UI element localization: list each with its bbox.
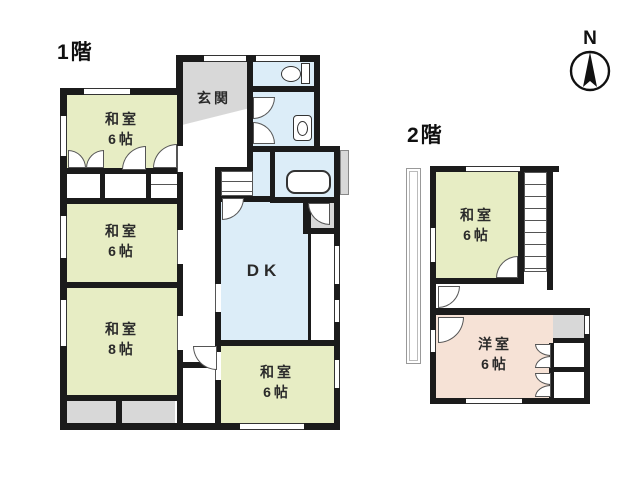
floor-plan: 1階 2階 N [0, 0, 640, 480]
washbasin-bowl-icon [297, 121, 308, 136]
wall [100, 174, 105, 198]
window [84, 88, 130, 95]
door-opening [177, 146, 183, 172]
room-size: 6帖 [450, 354, 540, 374]
room-name: 和室 [77, 221, 167, 241]
room-label: 和室 8帖 [77, 319, 167, 359]
wall [247, 146, 340, 152]
closet-gray-2f [553, 315, 584, 338]
room-name: 和室 [77, 109, 167, 129]
closet-slide-line [151, 184, 177, 185]
window [430, 330, 436, 352]
window [60, 116, 67, 156]
door-opening [177, 230, 183, 264]
entrance-label: 玄関 [176, 88, 252, 108]
room-name: 和室 [77, 319, 167, 339]
room-name: 和室 [232, 362, 322, 382]
room-label: 和室 6帖 [77, 221, 167, 261]
wall [247, 86, 320, 92]
wall [270, 152, 275, 197]
room-label: 和室 6帖 [232, 362, 322, 402]
wall [116, 401, 122, 423]
entrance-door [204, 55, 246, 62]
wall [553, 338, 584, 343]
room-label: 和室 6帖 [77, 109, 167, 149]
floor2-label: 2階 [407, 119, 444, 149]
wall [60, 198, 183, 204]
closet-row-1f [67, 174, 177, 198]
toilet-tank-icon [301, 63, 310, 84]
staircase-2f [524, 172, 547, 272]
door-opening [215, 284, 221, 312]
room-label: 和室 6帖 [432, 205, 522, 245]
window [60, 216, 67, 258]
room-size: 6帖 [77, 241, 167, 261]
staircase-1f [221, 171, 253, 196]
wall [547, 166, 553, 290]
toilet-bowl-icon [281, 66, 301, 82]
bathtub-icon [286, 170, 331, 194]
window [466, 166, 520, 172]
window [256, 55, 300, 62]
north-compass-icon: N [560, 22, 620, 96]
wall [146, 174, 151, 198]
floor1-label: 1階 [57, 36, 94, 66]
window [334, 246, 340, 284]
window [240, 423, 304, 430]
wall [60, 282, 183, 288]
room-name: 和室 [432, 205, 522, 225]
closet-gray-left [67, 401, 116, 423]
wall [430, 308, 436, 404]
window [334, 300, 340, 322]
door-swing [438, 286, 460, 308]
bath-bay-unit [340, 150, 349, 195]
closet-gray-right [122, 401, 175, 423]
wall [553, 367, 584, 372]
room-label: 洋室 6帖 [450, 334, 540, 374]
room-size: 6帖 [77, 129, 167, 149]
room-size: 8帖 [77, 339, 167, 359]
room-size: 6帖 [232, 382, 322, 402]
wall [430, 278, 524, 284]
wall [430, 308, 590, 315]
balcony-inner-line [409, 171, 418, 361]
dk-label: DK [219, 261, 309, 281]
balcony [406, 168, 421, 364]
window [584, 316, 590, 334]
window [60, 300, 67, 346]
window [466, 398, 522, 404]
wall [215, 340, 340, 346]
door-opening [177, 316, 183, 350]
room-size: 6帖 [432, 225, 522, 245]
compass-n-label: N [583, 28, 597, 49]
window [334, 360, 340, 388]
room-name: 洋室 [450, 334, 540, 354]
wall [314, 55, 320, 152]
